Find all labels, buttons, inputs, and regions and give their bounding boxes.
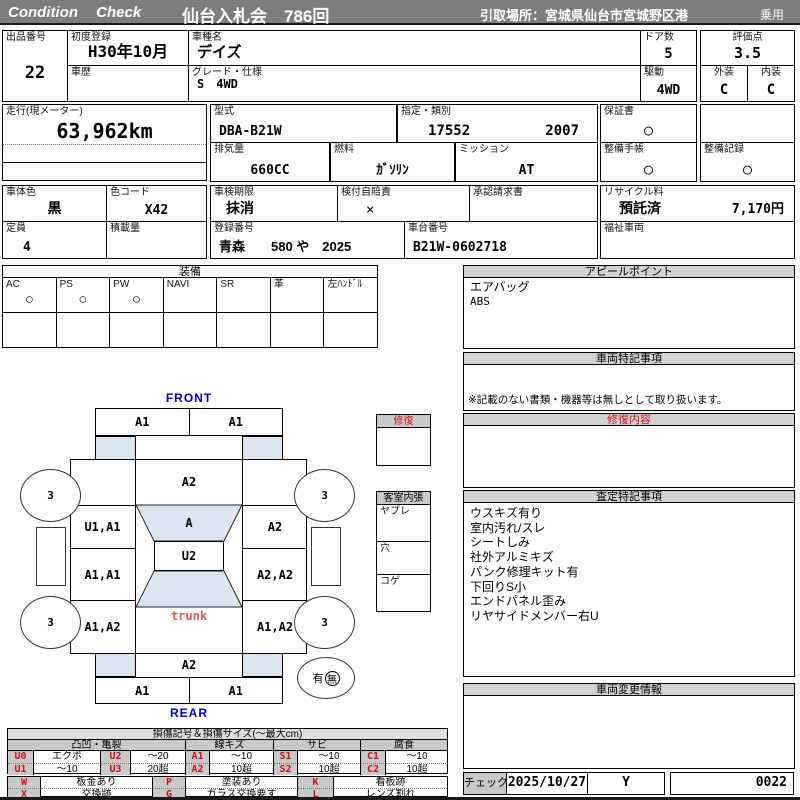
interior-trim-title: 客室内張 [384, 493, 424, 504]
assessment-line: パンク修理キット有 [464, 565, 794, 580]
displacement-label: 排気量 [214, 144, 244, 155]
equipment-mark: ○ [110, 291, 163, 308]
hood-mark: A2 [136, 459, 242, 505]
assessment-body: ウスキズ有り 室内汚れ/スレ シートしみ 社外アルミキズ パンク修理キット有 下… [463, 502, 795, 677]
check-label: チェック [464, 774, 506, 790]
appeal-line: エアバッグ [470, 280, 788, 295]
interior-grade-value: C [748, 82, 794, 98]
legend-code: C2 [361, 763, 386, 775]
model-name-value: デイズ [189, 41, 640, 62]
recycle-fee-label: リサイクル料 [604, 187, 664, 198]
equipment-empty-cell [271, 313, 325, 347]
legend-code: W [8, 777, 41, 788]
body-color-label: 車体色 [6, 187, 36, 198]
mileage-label: 走行(現メーター) [6, 106, 83, 117]
equipment-cell-lhd: 左ﾊﾝﾄﾞﾙ [324, 278, 377, 312]
auction-title: 仙台入札会 786回 [182, 2, 329, 27]
rear-left-corner [95, 653, 136, 677]
legend-code: S2 [274, 763, 298, 775]
mileage-divider-dotted [3, 144, 206, 145]
right-side-marker [311, 527, 341, 586]
equipment-cell-sr: SR [217, 278, 271, 312]
equipment-cell-ac: AC○ [3, 278, 57, 312]
interior-trim-row-label: コゲ [380, 576, 400, 587]
welfare-vehicle-label: 福祉車両 [604, 223, 644, 234]
mileage-value: 63,962km [3, 119, 206, 143]
legend-code: C1 [361, 751, 386, 763]
appeal-line: ABS [470, 295, 788, 309]
designation-number: 17552 [428, 123, 470, 139]
score-value: 3.5 [701, 44, 794, 62]
check-date: 2025/10/27 [507, 775, 587, 790]
lot-number-value: 22 [3, 63, 67, 83]
displacement-cell: 排気量 660CC [210, 142, 330, 182]
sheet-number-cell: 0022 [670, 772, 794, 795]
legend-desc: ～10 [34, 763, 101, 775]
chassis-number-cell: 車台番号 B21W-0602718 [404, 221, 598, 259]
first-registration-value: H30年10月 [68, 38, 188, 62]
interior-trim-row-burn: コゲ [376, 574, 431, 612]
equipment-mark: ○ [57, 291, 110, 308]
assessment-line: シートしみ [464, 535, 794, 550]
chassis-number-label: 車台番号 [408, 223, 448, 234]
equipment-label: 左ﾊﾝﾄﾞﾙ [327, 279, 362, 290]
legend-desc: ～10 [386, 751, 448, 763]
equipment-row: AC○ PS○ PW○ NAVI SR 革 左ﾊﾝﾄﾞﾙ [2, 277, 378, 313]
mileage-divider-solid [3, 162, 206, 163]
color-code-cell: 色コード X42 [106, 185, 207, 222]
equipment-empty-cell [164, 313, 218, 347]
grade-cell: グレード・仕様 S 4WD [188, 65, 641, 102]
rear-bumper-right-mark: A1 [190, 678, 283, 703]
windshield-mark: A [136, 505, 242, 541]
legend-code: U2 [101, 751, 131, 763]
assessment-line: 下回りS小 [464, 580, 794, 595]
legend-desc: 塗装あり [186, 777, 298, 788]
registration-number-value: 青森 580 や 2025 [211, 236, 404, 255]
left-rear-door-mark: A1,A1 [70, 549, 135, 600]
history-label: 車歴 [71, 67, 91, 78]
interior-grade-cell: 内装 C [747, 65, 795, 102]
check-inspector: Y [588, 775, 664, 790]
legend-repair-grid: W板金ありP塗装ありK看板跡 X交換跡Gガラス交換要すLレンズ割れ [7, 776, 448, 797]
legend-size-grid: U0エクボU2～20A1～10S1～10C1～10 U1～10U320超A210… [7, 750, 448, 774]
recycle-fee-values: 預託済 7,170円 [601, 198, 794, 218]
model-name-cell: 車種名 デイズ [188, 30, 641, 66]
legend-desc: エクボ [34, 751, 101, 763]
header-bar: Condition Check 仙台入札会 786回 引取場所：宮城県仙台市宮城… [0, 0, 800, 25]
liability-insurance-mark: × [338, 202, 469, 218]
doors-label: ドア数 [644, 32, 674, 43]
transmission-cell: ミッション AT [455, 142, 598, 182]
recycle-amount: 7,170円 [732, 198, 784, 218]
history-cell: 車歴 [67, 65, 189, 102]
equipment-label: PS [60, 279, 73, 290]
recycle-fee-cell: リサイクル料 預託済 7,170円 [600, 185, 795, 222]
equipment-empty-cell [3, 313, 57, 347]
maintenance-book-label: 整備手帳 [604, 144, 644, 155]
legend-category: 線キズ [186, 740, 274, 750]
equipment-empty-cell [217, 313, 271, 347]
equipment-cell-ps: PS○ [57, 278, 111, 312]
sheet-number: 0022 [671, 775, 793, 790]
brand-logo: Condition Check [8, 4, 141, 21]
inspection-expiry-label: 車検期限 [214, 187, 254, 198]
tire-tread-front-right: 3 [294, 469, 355, 522]
score-label: 評価点 [701, 32, 794, 43]
equipment-label: 革 [274, 279, 284, 290]
interior-trim-header: 客室内張 [376, 491, 431, 505]
legend-desc: ～20 [131, 751, 186, 763]
equipment-label: PW [113, 279, 129, 290]
equipment-empty-cell [110, 313, 164, 347]
transmission-value: AT [456, 163, 597, 178]
special-notes-body: ※記載のない書類・機器等は無しとして取り扱います。 [463, 364, 795, 411]
doors-value: 5 [641, 46, 696, 62]
liability-insurance-label: 検付自賠責 [341, 187, 391, 198]
grade-value: S 4WD [189, 75, 640, 92]
interior-trim-row-hole: 穴 [376, 541, 431, 575]
repair-flag-title: 修復 [394, 416, 414, 427]
auction-sheet-page: Condition Check 仙台入札会 786回 引取場所：宮城県仙台市宮城… [0, 0, 800, 800]
maintenance-record-cell: 整備記録 ○ [700, 142, 795, 182]
lot-number-cell: 出品番号 22 [2, 30, 68, 102]
equipment-label: NAVI [167, 279, 190, 290]
mileage-cell: 走行(現メーター) 63,962km [2, 104, 207, 181]
assessment-line: エンドパネル歪み [464, 594, 794, 609]
legend-category: 腐食 [361, 740, 447, 750]
spare-none-circled: 無 [325, 671, 340, 686]
drive-cell: 駆動 4WD [640, 65, 697, 102]
legend-desc: 10超 [210, 763, 274, 775]
appeal-body: エアバッグ ABS [463, 277, 795, 349]
empty-cell [700, 104, 795, 143]
model-code-value: DBA-B21W [211, 124, 396, 139]
color-code-label: 色コード [110, 187, 150, 198]
welfare-vehicle-cell: 福祉車両 [600, 221, 795, 259]
roof-mark: U2 [154, 541, 224, 571]
seating-value: 4 [3, 240, 106, 255]
assessment-line: リヤサイドメンバー右U [464, 609, 794, 624]
legend-code: S1 [274, 751, 298, 763]
equipment-empty-cell [57, 313, 111, 347]
fuel-label: 燃料 [334, 144, 354, 155]
rear-right-corner [242, 653, 283, 677]
classification-number: 2007 [545, 123, 579, 139]
drive-value: 4WD [641, 83, 696, 98]
legend-desc: 10超 [386, 763, 448, 775]
model-code-cell: 型式 DBA-B21W [210, 104, 397, 143]
repair-details-body [463, 425, 795, 488]
load-capacity-label: 積載量 [110, 223, 140, 234]
repair-flag-header: 修復 [376, 414, 431, 428]
check-label-cell: チェック [463, 772, 507, 795]
legend-code: A2 [186, 763, 210, 775]
chassis-number-value: B21W-0602718 [405, 240, 597, 255]
warranty-label: 保証書 [604, 106, 634, 117]
tire-tread-front-left: 3 [20, 469, 81, 522]
assessment-line: ウスキズ有り [464, 506, 794, 521]
equipment-mark: ○ [3, 291, 56, 308]
legend-code: A1 [186, 751, 210, 763]
approval-request-label: 承認請求書 [473, 187, 523, 198]
lot-number-label: 出品番号 [6, 32, 46, 43]
displacement-value: 660CC [211, 163, 329, 178]
repair-flag-body [376, 427, 431, 466]
spare-tire-indicator: 有 無 [297, 657, 355, 699]
doors-cell: ドア数 5 [640, 30, 697, 66]
legend-code: K [298, 777, 334, 788]
tire-tread-rear-right: 3 [294, 596, 355, 649]
check-date-cell: 2025/10/27 [506, 772, 588, 795]
transmission-label: ミッション [459, 144, 509, 155]
load-capacity-cell: 積載量 [106, 221, 207, 259]
equipment-cell-pw: PW○ [110, 278, 164, 312]
interior-trim-row-label: 穴 [380, 543, 390, 554]
equipment-label: SR [220, 279, 234, 290]
fuel-value: ｶﾞｿﾘﾝ [331, 159, 454, 178]
exterior-grade-cell: 外装 C [700, 65, 748, 102]
car-damage-diagram: FRONT A1 A1 A2 A U2 trunk U1,A1 A1,A1 A1… [0, 390, 460, 730]
maintenance-record-mark: ○ [701, 160, 794, 178]
legend-desc: ～10 [210, 751, 274, 763]
maintenance-record-label: 整備記録 [704, 144, 744, 155]
legend-category: サビ [274, 740, 361, 750]
rear-window-shape [136, 571, 242, 607]
interior-trim-row-tear: ヤブレ [376, 504, 431, 542]
change-info-body [463, 695, 795, 769]
approval-request-cell: 承認請求書 [469, 185, 598, 222]
legend-desc: 看板跡 [334, 777, 447, 788]
legend-desc: 20超 [131, 763, 186, 775]
equipment-empty-cell [324, 313, 377, 347]
interior-grade-label: 内装 [748, 67, 794, 78]
right-rear-door-mark: A2,A2 [243, 549, 307, 600]
legend-code: U3 [101, 763, 131, 775]
equipment-cell-leather: 革 [271, 278, 325, 312]
legend-code: P [153, 777, 186, 788]
left-side-marker [36, 527, 66, 586]
maintenance-book-cell: 整備手帳 ○ [600, 142, 697, 182]
legend-desc: 板金あり [41, 777, 153, 788]
rear-bumper-left-mark: A1 [96, 678, 190, 703]
equipment-row-empty [2, 312, 378, 348]
assessment-line: 室内汚れ/スレ [464, 521, 794, 536]
registration-number-cell: 登録番号 青森 580 や 2025 [210, 221, 405, 259]
recycle-status: 預託済 [619, 198, 661, 218]
right-front-door-mark: A2 [243, 506, 307, 548]
pickup-location: 引取場所：宮城県仙台市宮城野区港 [480, 5, 688, 24]
legend-code: U1 [8, 763, 34, 775]
registration-number-label: 登録番号 [214, 223, 254, 234]
vehicle-category: 乗用 [760, 6, 784, 23]
liability-insurance-cell: 検付自賠責 × [337, 185, 470, 222]
designation-cell: 指定・類別 17552 2007 [397, 104, 598, 143]
color-code-value: X42 [107, 203, 206, 218]
legend-category: 凸凹・亀裂 [8, 740, 186, 750]
special-notes-text: ※記載のない書類・機器等は無しとして取り扱います。 [468, 392, 727, 407]
equipment-label: AC [6, 279, 20, 290]
tire-tread-rear-left: 3 [20, 596, 81, 649]
model-code-label: 型式 [214, 106, 234, 117]
exterior-grade-label: 外装 [701, 67, 747, 78]
first-registration-cell: 初度登録 H30年10月 [67, 30, 189, 66]
legend-desc: 10超 [298, 763, 361, 775]
warranty-cell: 保証書 ○ [600, 104, 697, 143]
assessment-line: 社外アルミキズ [464, 550, 794, 565]
interior-trim-row-label: ヤブレ [380, 506, 410, 517]
rear-direction-label: REAR [95, 706, 283, 720]
designation-label: 指定・類別 [401, 106, 451, 117]
seating-cell: 定員 4 [2, 221, 107, 259]
equipment-cell-navi: NAVI [164, 278, 218, 312]
inspection-expiry-value: 抹消 [211, 198, 337, 218]
score-cell: 評価点 3.5 [700, 30, 795, 66]
warranty-mark: ○ [601, 121, 696, 139]
seating-label: 定員 [6, 223, 26, 234]
tailgate-mark: A2 [136, 653, 242, 677]
legend-desc: ～10 [298, 751, 361, 763]
spare-has-label: 有 [313, 670, 324, 686]
check-inspector-cell: Y [587, 772, 665, 795]
maintenance-book-mark: ○ [601, 160, 696, 178]
trunk-label: trunk [136, 609, 242, 623]
designation-values: 17552 2007 [398, 123, 597, 139]
fuel-cell: 燃料 ｶﾞｿﾘﾝ [330, 142, 455, 182]
inspection-expiry-cell: 車検期限 抹消 [210, 185, 338, 222]
body-color-value: 黒 [3, 198, 106, 218]
left-front-door-mark: U1,A1 [70, 506, 135, 548]
body-color-cell: 車体色 黒 [2, 185, 107, 222]
legend-code: U0 [8, 751, 34, 763]
rear-bumper: A1 A1 [95, 677, 283, 704]
exterior-grade-value: C [701, 82, 747, 98]
drive-label: 駆動 [644, 67, 664, 78]
